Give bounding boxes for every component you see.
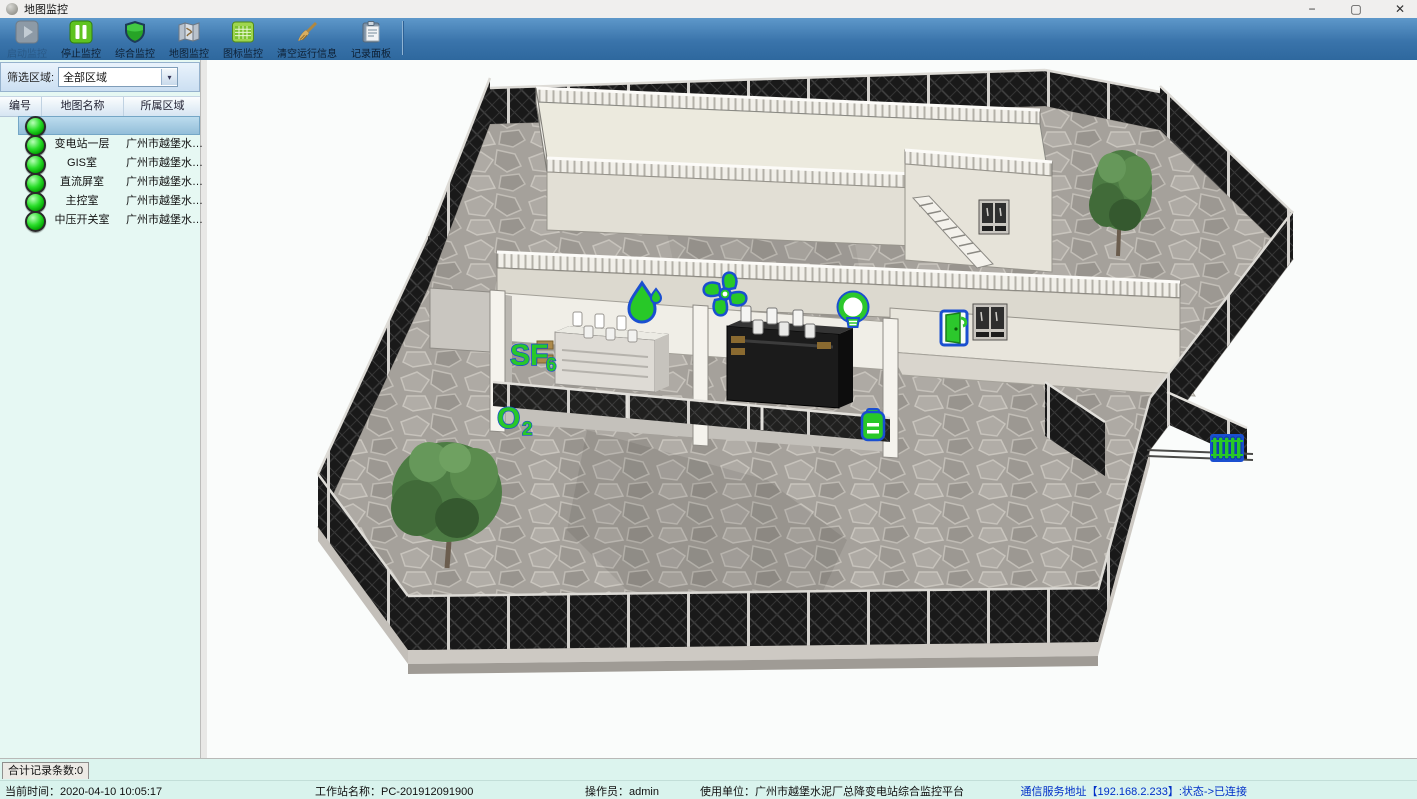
pause-icon	[69, 20, 93, 44]
table-row[interactable]: 主控室 广州市越堡水…	[0, 192, 200, 211]
svg-text:6: 6	[546, 355, 557, 376]
wall-panel-cabinets-lower	[973, 304, 1007, 340]
table-row[interactable]: 中压开关室 广州市越堡水…	[0, 211, 200, 230]
maximize-button[interactable]: ▢	[1345, 2, 1367, 16]
table-row[interactable]	[0, 116, 200, 135]
status-organization: 使用单位：广州市越堡水泥厂总降变电站综合监控平台	[700, 783, 964, 799]
map-name: 中压开关室	[41, 211, 123, 230]
toolbar: 启动监控 停止监控 综合监控 地图监控 图标监控	[0, 18, 1417, 61]
status-current-time: 当前时间：2020-04-10 10:05:17	[5, 783, 162, 799]
map-icon	[177, 20, 201, 44]
map-table: 编号 地图名称 所属区域 变电站一层 广州市越堡水… GIS室 广州市越堡水…	[0, 96, 200, 758]
table-row[interactable]: 直流屏室 广州市越堡水…	[0, 173, 200, 192]
clear-run-info-button[interactable]: 清空运行信息	[270, 19, 344, 60]
filter-bar: 筛选区域: 全部区域 ▾	[0, 62, 200, 92]
svg-text:O: O	[497, 402, 520, 435]
status-operator: 操作员：admin	[585, 783, 659, 799]
col-header-id: 编号	[0, 97, 40, 116]
map-region: 广州市越堡水…	[126, 135, 200, 154]
table-row[interactable]: GIS室 广州市越堡水…	[0, 154, 200, 173]
sidebar: 筛选区域: 全部区域 ▾ 编号 地图名称 所属区域 变电站一层 广州市越堡水…	[0, 60, 200, 758]
play-icon	[15, 20, 39, 44]
icon-monitor-button[interactable]: 图标监控	[216, 19, 270, 60]
record-panel-button[interactable]: 记录面板	[344, 19, 398, 60]
table-header: 编号 地图名称 所属区域	[0, 96, 200, 117]
shield-icon	[123, 20, 147, 44]
col-header-region: 所属区域	[123, 97, 201, 116]
grid-icon	[231, 20, 255, 44]
minimize-button[interactable]: −	[1301, 2, 1323, 16]
map-region	[126, 116, 200, 135]
stop-monitor-button[interactable]: 停止监控	[54, 19, 108, 60]
broom-icon	[295, 20, 319, 44]
map-name: GIS室	[41, 154, 123, 173]
status-workstation: 工作站名称：PC-201912091900	[315, 783, 473, 799]
region-filter-dropdown[interactable]: 全部区域 ▾	[58, 67, 178, 87]
table-body: 变电站一层 广州市越堡水… GIS室 广州市越堡水… 直流屏室 广州市越堡水… …	[0, 116, 200, 230]
status-connection: 通信服务地址【192.168.2.233】:状态->已连接	[1021, 783, 1248, 799]
map-name: 主控室	[41, 192, 123, 211]
clipboard-icon	[359, 20, 383, 44]
map-region: 广州市越堡水…	[126, 192, 200, 211]
map-region: 广州市越堡水…	[126, 154, 200, 173]
close-button[interactable]: ✕	[1389, 2, 1411, 16]
map-area[interactable]: SF 6 O 2	[207, 60, 1417, 758]
title-bar: 地图监控 − ▢ ✕	[0, 0, 1417, 18]
map-monitor-button[interactable]: 地图监控	[162, 19, 216, 60]
chevron-down-icon[interactable]: ▾	[161, 69, 177, 85]
map-region: 广州市越堡水…	[126, 173, 200, 192]
map-name: 变电站一层	[41, 135, 123, 154]
table-row[interactable]: 变电站一层 广州市越堡水…	[0, 135, 200, 154]
svg-text:SF: SF	[510, 339, 548, 372]
status-bar: 当前时间：2020-04-10 10:05:17 工作站名称：PC-201912…	[0, 780, 1417, 799]
map-name	[41, 116, 123, 135]
map-region: 广州市越堡水…	[126, 211, 200, 230]
start-monitor-button: 启动监控	[0, 19, 54, 60]
integrated-monitor-button[interactable]: 综合监控	[108, 19, 162, 60]
site-3d-map: SF 6 O 2	[207, 60, 1417, 758]
map-name: 直流屏室	[41, 173, 123, 192]
toolbar-separator	[402, 21, 403, 55]
window-title: 地图监控	[24, 1, 68, 17]
filter-label: 筛选区域:	[7, 69, 54, 85]
svg-text:2: 2	[522, 419, 533, 440]
record-panel-strip: 合计记录条数:0	[0, 758, 1417, 781]
record-count-tab[interactable]: 合计记录条数:0	[2, 762, 89, 779]
col-header-map-name: 地图名称	[41, 97, 123, 116]
door-sensor-icon[interactable]	[941, 311, 967, 345]
radiator-sensor-icon[interactable]	[1210, 434, 1244, 462]
wall-panel-cabinets	[979, 200, 1009, 234]
battery-sensor-icon[interactable]	[862, 409, 884, 440]
app-icon	[6, 3, 18, 15]
region-filter-value: 全部区域	[63, 69, 161, 85]
